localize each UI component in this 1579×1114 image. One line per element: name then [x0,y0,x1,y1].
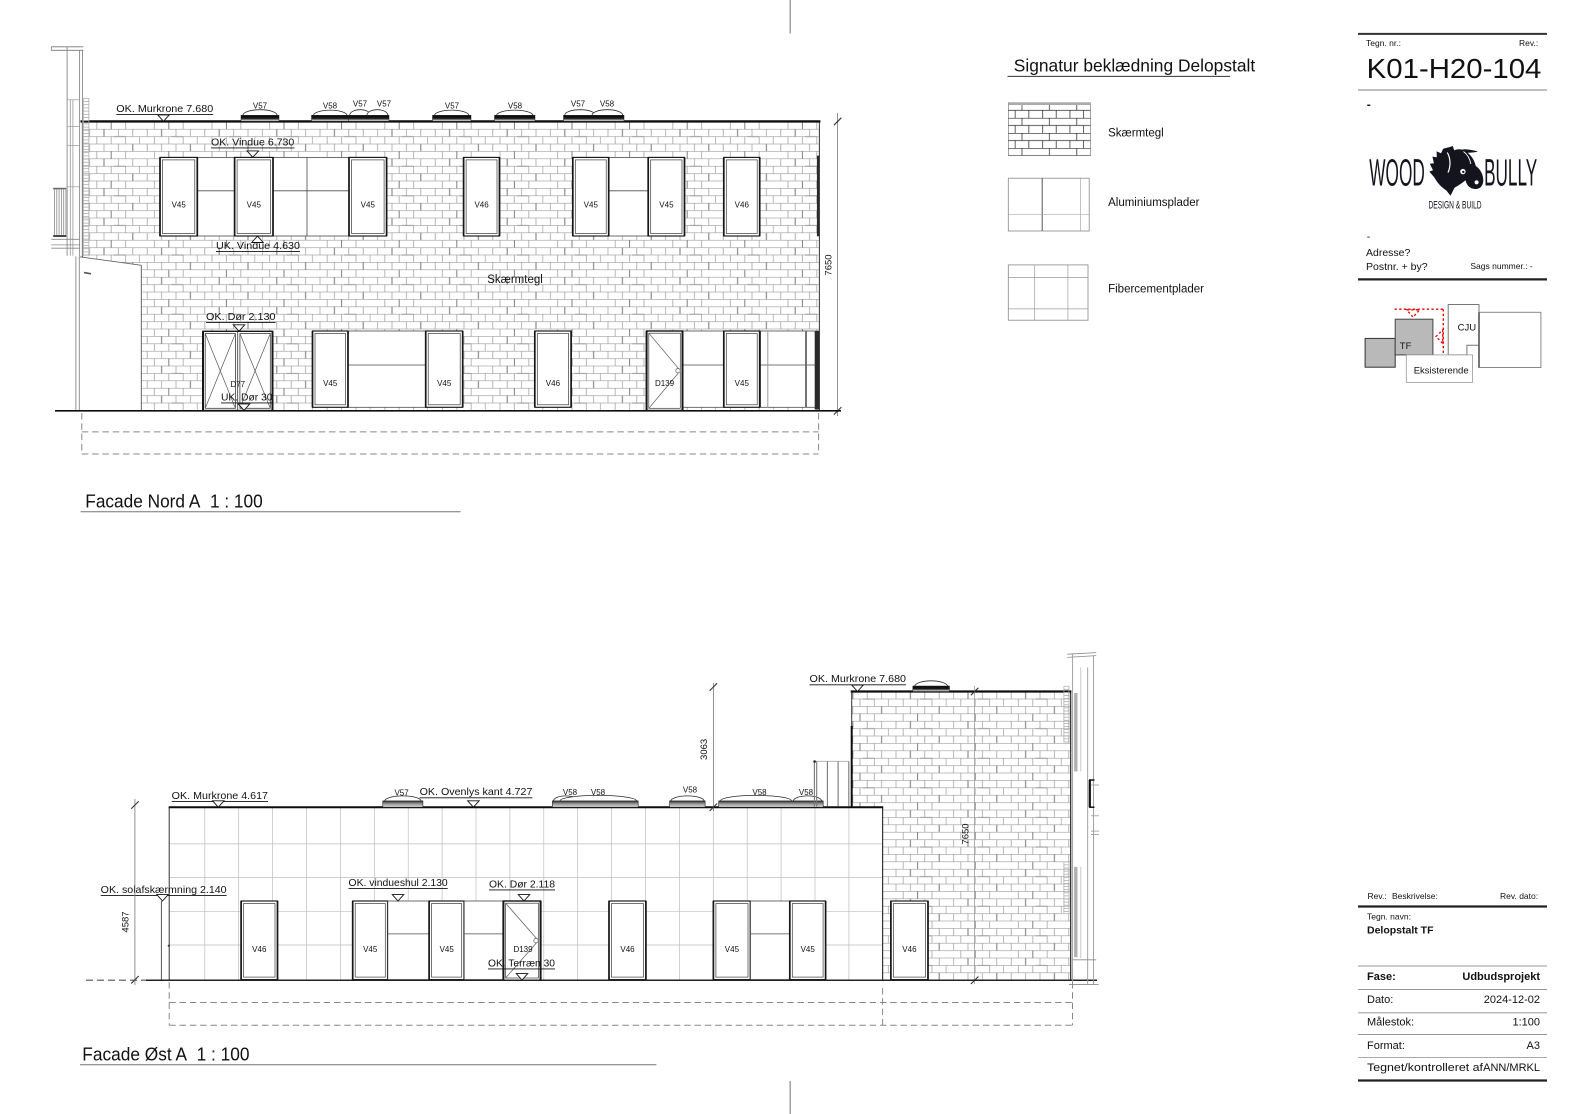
svg-text:V45: V45 [172,201,187,210]
svg-text:Fase:: Fase: [1367,971,1396,983]
svg-text:Tegnet/kontrolleret af: Tegnet/kontrolleret af [1367,1062,1484,1074]
svg-text:Eksisterende: Eksisterende [1414,366,1469,377]
svg-text:Aluminiumsplader: Aluminiumsplader [1108,197,1200,209]
svg-text:Skærmtegl: Skærmtegl [487,274,543,286]
svg-text:V46: V46 [252,945,267,954]
svg-text:V46: V46 [902,945,917,954]
svg-text:V57: V57 [377,99,392,108]
svg-text:V45: V45 [801,945,816,954]
svg-text:WOOD: WOOD [1369,153,1425,195]
svg-text:D139: D139 [655,379,675,388]
svg-text:V58: V58 [752,788,767,797]
svg-text:TF: TF [1400,341,1412,352]
svg-text:V46: V46 [735,201,750,210]
svg-text:DESIGN & BUILD: DESIGN & BUILD [1429,200,1482,212]
svg-text:V57: V57 [445,101,460,110]
svg-text:OK. Vindue 6.730: OK. Vindue 6.730 [211,136,294,148]
svg-text:V58: V58 [563,788,578,797]
svg-text:OK. solafskærmning 2.140: OK. solafskærmning 2.140 [101,884,227,896]
svg-text:CJU: CJU [1458,323,1477,334]
svg-text:V45: V45 [247,201,262,210]
svg-text:Tegn. nr.:: Tegn. nr.: [1366,38,1401,48]
svg-text:OK. Murkrone 7.680: OK. Murkrone 7.680 [116,103,213,115]
svg-text:Dato:: Dato: [1367,994,1393,1006]
svg-text:V45: V45 [437,379,452,388]
svg-text:V45: V45 [361,201,376,210]
svg-text:Tegn. navn:: Tegn. navn: [1367,912,1411,922]
svg-text:V58: V58 [683,786,698,795]
svg-text:2024-12-02: 2024-12-02 [1484,994,1540,1006]
svg-text:OK. Murkrone 4.617: OK. Murkrone 4.617 [172,790,268,802]
svg-text:Målestok:: Målestok: [1367,1017,1414,1029]
svg-text:7650: 7650 [961,823,972,844]
svg-text:BULLY: BULLY [1484,153,1537,195]
svg-text:UK. Dør 30: UK. Dør 30 [221,391,273,403]
svg-text:OK. vindueshul 2.130: OK. vindueshul 2.130 [349,877,448,889]
svg-text:V45: V45 [323,379,338,388]
svg-text:V58: V58 [508,101,523,110]
svg-text:V58: V58 [323,101,338,110]
svg-text:Delopstalt TF: Delopstalt TF [1367,925,1434,937]
svg-text:V45: V45 [584,201,599,210]
svg-text:OK. Dør 2.118: OK. Dør 2.118 [489,878,555,890]
svg-text:Sags nummer.: -: Sags nummer.: - [1470,261,1533,271]
svg-text:V45: V45 [735,379,750,388]
svg-text:OK. Terræn 30: OK. Terræn 30 [488,957,555,969]
svg-text:V58: V58 [799,788,814,797]
svg-text:V45: V45 [659,201,674,210]
svg-text:4587: 4587 [121,911,132,932]
svg-text:ANN/MRKL: ANN/MRKL [1483,1062,1540,1074]
svg-text:Skærmtegl: Skærmtegl [1108,128,1164,140]
svg-text:V57: V57 [394,788,409,797]
svg-text:Rev. dato:: Rev. dato: [1500,891,1538,901]
svg-text:Fibercementplader: Fibercementplader [1108,284,1204,296]
svg-text:V46: V46 [546,379,561,388]
svg-text:Beskrivelse:: Beskrivelse: [1392,891,1438,901]
svg-text:7650: 7650 [824,254,835,275]
svg-text:Postnr. + by?: Postnr. + by? [1366,261,1428,273]
svg-text:V57: V57 [353,99,368,108]
svg-text:OK. Murkrone 7.680: OK. Murkrone 7.680 [810,673,907,685]
svg-text:V45: V45 [725,945,740,954]
svg-text:1:100: 1:100 [1512,1017,1540,1029]
svg-text:V58: V58 [591,788,606,797]
svg-text:Signatur beklædning Delopstalt: Signatur beklædning Delopstalt [1014,55,1256,75]
svg-text:3063: 3063 [699,739,710,760]
svg-text:V46: V46 [620,945,635,954]
svg-text:Adresse?: Adresse? [1366,247,1411,259]
svg-text:OK. Ovenlys kant 4.727: OK. Ovenlys kant 4.727 [420,786,533,798]
svg-text:V45: V45 [440,945,455,954]
svg-text:A3: A3 [1527,1040,1540,1052]
svg-text:Udbudsprojekt: Udbudsprojekt [1462,971,1540,983]
svg-text:Facade Øst A 1 : 100: Facade Øst A 1 : 100 [82,1045,249,1065]
svg-text:Format:: Format: [1367,1040,1405,1052]
svg-text:Facade Nord A 1 : 100: Facade Nord A 1 : 100 [85,491,262,511]
svg-text:V58: V58 [600,99,615,108]
svg-text:V45: V45 [363,945,378,954]
svg-text:OK. Dør 2.130: OK. Dør 2.130 [206,311,276,323]
svg-text:Rev.:: Rev.: [1519,38,1538,48]
svg-text:V57: V57 [571,99,586,108]
svg-text:D139: D139 [513,945,533,954]
svg-text:V46: V46 [474,201,489,210]
svg-text:D77: D77 [230,380,245,389]
svg-text:-: - [1367,97,1371,111]
svg-text:Rev.:: Rev.: [1368,891,1387,901]
svg-text:K01-H20-104: K01-H20-104 [1367,53,1542,84]
svg-text:-: - [1367,231,1371,243]
svg-text:V57: V57 [253,101,268,110]
